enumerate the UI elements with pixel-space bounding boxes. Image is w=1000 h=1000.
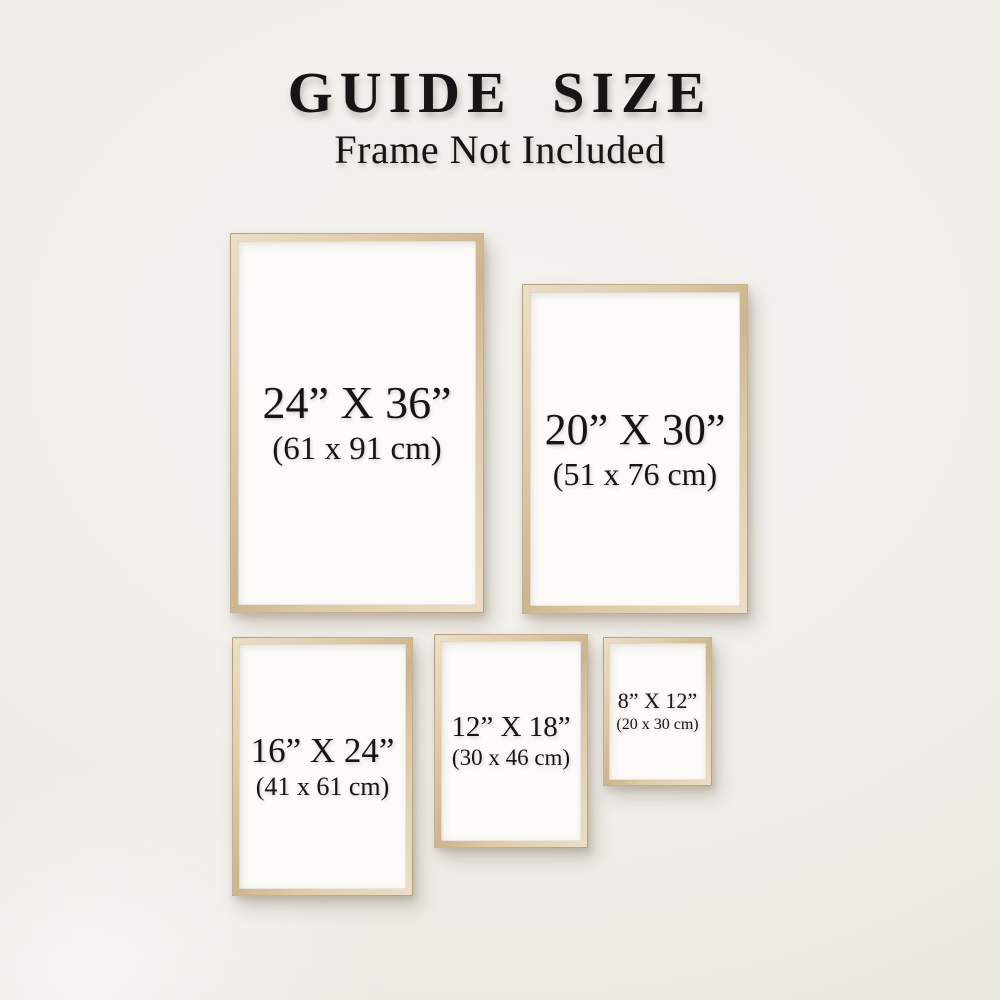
frame-8x12-paper: 8” X 12” (20 x 30 cm) <box>609 643 706 780</box>
frame-20x30-paper: 20” X 30” (51 x 76 cm) <box>530 292 740 606</box>
size-inches-label: 20” X 30” <box>545 405 726 454</box>
size-guide-image: GUIDE SIZE Frame Not Included 24” X 36” … <box>0 0 1000 1000</box>
frame-8x12: 8” X 12” (20 x 30 cm) <box>603 637 712 786</box>
frame-16x24-paper: 16” X 24” (41 x 61 cm) <box>239 644 406 889</box>
size-inches-label: 24” X 36” <box>262 377 451 429</box>
size-cm-label: (20 x 30 cm) <box>616 716 698 734</box>
size-cm-label: (30 x 46 cm) <box>452 745 570 771</box>
size-inches-label: 16” X 24” <box>251 731 395 770</box>
frame-16x24: 16” X 24” (41 x 61 cm) <box>232 637 413 896</box>
size-cm-label: (41 x 61 cm) <box>256 772 390 802</box>
frame-12x18: 12” X 18” (30 x 46 cm) <box>434 634 588 848</box>
frame-12x18-paper: 12” X 18” (30 x 46 cm) <box>441 641 581 841</box>
size-inches-label: 8” X 12” <box>618 689 697 714</box>
page-title: GUIDE SIZE <box>0 60 1000 126</box>
frame-20x30: 20” X 30” (51 x 76 cm) <box>522 284 748 614</box>
page-subtitle: Frame Not Included <box>0 126 1000 174</box>
size-cm-label: (61 x 91 cm) <box>272 431 442 469</box>
frame-24x36: 24” X 36” (61 x 91 cm) <box>230 233 484 613</box>
size-inches-label: 12” X 18” <box>451 711 570 743</box>
size-cm-label: (51 x 76 cm) <box>553 456 717 493</box>
frame-24x36-paper: 24” X 36” (61 x 91 cm) <box>238 241 476 605</box>
